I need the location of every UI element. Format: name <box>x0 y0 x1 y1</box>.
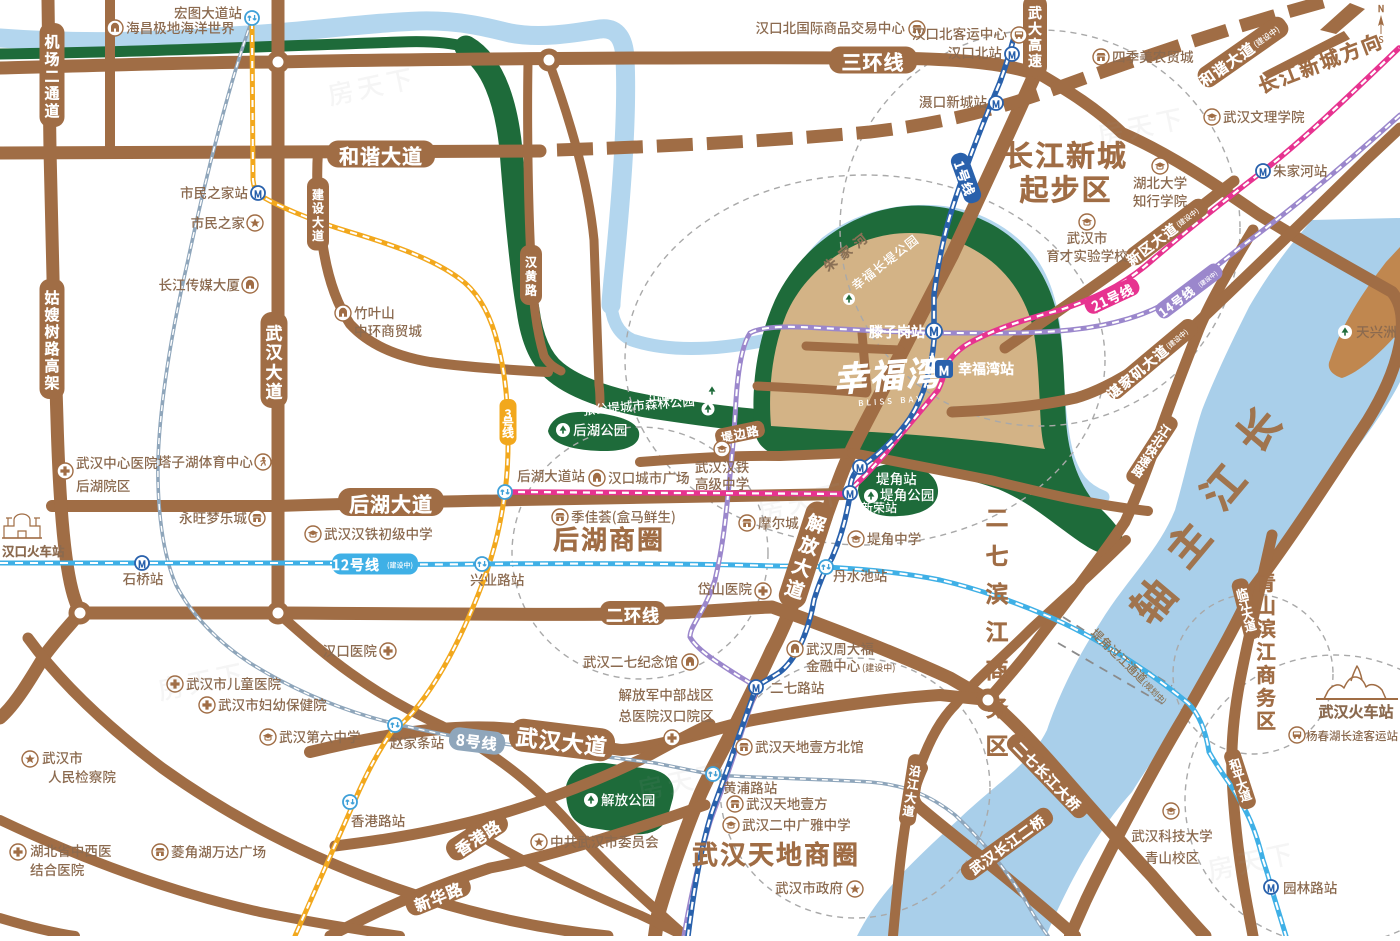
svg-text:石桥站: 石桥站 <box>123 568 164 588</box>
svg-text:滕子岗站: 滕子岗站 <box>868 322 925 342</box>
svg-text:和谐大道: 和谐大道 <box>338 141 423 170</box>
svg-text:总医院汉口院区: 总医院汉口院区 <box>618 705 713 725</box>
svg-text:M: M <box>929 323 939 340</box>
svg-text:路: 路 <box>525 282 538 299</box>
svg-text:高级中学: 高级中学 <box>695 473 749 493</box>
svg-text:道: 道 <box>312 227 324 244</box>
svg-text:滨: 滨 <box>986 575 1009 609</box>
svg-text:市民之家: 市民之家 <box>191 212 246 232</box>
svg-text:湖北大学: 湖北大学 <box>1133 172 1187 192</box>
svg-text:M: M <box>939 361 950 380</box>
svg-text:N: N <box>1378 2 1385 15</box>
svg-text:竹叶山: 竹叶山 <box>354 302 395 322</box>
svg-text:菱角湖万达广场: 菱角湖万达广场 <box>171 841 266 861</box>
svg-text:架: 架 <box>43 372 59 393</box>
svg-text:区: 区 <box>986 727 1009 761</box>
svg-text:季佳荟(盒马鲜生): 季佳荟(盒马鲜生) <box>571 506 676 526</box>
svg-text:湖北省中西医: 湖北省中西医 <box>30 840 112 860</box>
svg-text:M: M <box>856 460 864 475</box>
svg-text:区: 区 <box>1256 705 1276 734</box>
svg-text:汉口北国际商品交易中心: 汉口北国际商品交易中心 <box>755 17 905 37</box>
svg-text:丹水池站: 丹水池站 <box>833 565 888 585</box>
svg-text:二七路站: 二七路站 <box>770 677 825 697</box>
svg-text:堤角中学: 堤角中学 <box>867 528 921 548</box>
svg-text:塔子湖体育中心: 塔子湖体育中心 <box>158 451 254 471</box>
svg-text:起步区: 起步区 <box>1018 167 1112 209</box>
svg-text:武汉天地壹方北馆: 武汉天地壹方北馆 <box>755 736 864 756</box>
svg-text:武汉二七纪念馆: 武汉二七纪念馆 <box>583 651 678 671</box>
svg-text:武汉二中广雅中学: 武汉二中广雅中学 <box>742 814 851 834</box>
svg-text:后湖大道: 后湖大道 <box>348 489 433 518</box>
svg-text:朱家河站: 朱家河站 <box>1273 160 1328 180</box>
svg-text:汉口医院: 汉口医院 <box>323 640 378 660</box>
svg-text:结合医院: 结合医院 <box>30 859 85 879</box>
svg-text:七: 七 <box>986 537 1009 571</box>
svg-text:滠口新城站: 滠口新城站 <box>919 91 987 111</box>
svg-text:武汉天地商圈: 武汉天地商圈 <box>692 835 860 872</box>
svg-text:新荣站: 新荣站 <box>861 499 897 516</box>
svg-text:后湖院区: 后湖院区 <box>76 475 130 495</box>
svg-text:武汉市政府: 武汉市政府 <box>775 877 843 897</box>
svg-text:海昌极地海洋世界: 海昌极地海洋世界 <box>126 17 235 37</box>
svg-text:武汉汉铁初级中学: 武汉汉铁初级中学 <box>324 523 433 543</box>
svg-text:S: S <box>1378 33 1384 46</box>
svg-text:中环商贸城: 中环商贸城 <box>354 320 422 340</box>
svg-text:武汉市: 武汉市 <box>1067 227 1108 247</box>
svg-text:天兴洲: 天兴洲 <box>1356 321 1397 341</box>
svg-text:汉口北站: 汉口北站 <box>948 42 1003 62</box>
svg-text:后湖大道站: 后湖大道站 <box>517 465 585 485</box>
svg-text:永旺梦乐城: 永旺梦乐城 <box>179 507 247 527</box>
svg-text:岱山医院: 岱山医院 <box>698 578 753 598</box>
svg-text:M: M <box>752 680 760 695</box>
svg-text:(建设中): (建设中) <box>862 661 895 674</box>
svg-text:汉口北客运中心: 汉口北客运中心 <box>912 23 1008 43</box>
svg-text:武汉市: 武汉市 <box>42 747 83 767</box>
svg-text:商: 商 <box>986 651 1009 685</box>
svg-text:赵家条站: 赵家条站 <box>390 732 445 752</box>
svg-text:(建设中): (建设中) <box>387 561 413 571</box>
svg-text:速: 速 <box>1028 51 1042 71</box>
svg-text:育才实验学校: 育才实验学校 <box>1046 245 1128 265</box>
svg-text:武汉火车站: 武汉火车站 <box>1318 701 1393 722</box>
svg-text:12号线: 12号线 <box>332 555 380 575</box>
svg-text:知行学院: 知行学院 <box>1133 190 1188 210</box>
svg-text:汉口城市广场: 汉口城市广场 <box>608 467 690 487</box>
svg-text:道: 道 <box>266 378 283 403</box>
svg-text:武汉科技大学: 武汉科技大学 <box>1131 825 1213 845</box>
svg-text:长江传媒大厦: 长江传媒大厦 <box>158 274 240 294</box>
svg-text:道: 道 <box>44 100 59 121</box>
svg-text:M: M <box>992 96 1000 111</box>
svg-text:M: M <box>1267 880 1275 895</box>
svg-text:线: 线 <box>502 424 514 441</box>
svg-text:武汉文理学院: 武汉文理学院 <box>1223 106 1305 126</box>
svg-text:汉口火车站: 汉口火车站 <box>2 541 65 560</box>
svg-text:人民检察院: 人民检察院 <box>48 766 116 786</box>
svg-text:市民之家站: 市民之家站 <box>180 182 248 202</box>
svg-text:武汉市妇幼保健院: 武汉市妇幼保健院 <box>218 694 327 714</box>
svg-text:香港路站: 香港路站 <box>351 810 406 830</box>
svg-text:M: M <box>254 186 262 201</box>
svg-text:幸福湾: 幸福湾 <box>831 345 946 402</box>
svg-text:金融中心: 金融中心 <box>806 655 861 675</box>
svg-text:中共武汉市委员会: 中共武汉市委员会 <box>550 831 659 851</box>
svg-text:兴业路站: 兴业路站 <box>470 569 525 589</box>
svg-text:江: 江 <box>986 613 1009 647</box>
svg-text:三环线: 三环线 <box>842 47 905 76</box>
svg-text:M: M <box>1259 164 1267 179</box>
svg-text:杨春湖长途客运站: 杨春湖长途客运站 <box>1306 728 1398 744</box>
svg-text:解放军中部战区: 解放军中部战区 <box>618 684 713 704</box>
svg-text:武汉第六中学: 武汉第六中学 <box>279 726 361 746</box>
svg-text:武汉中心医院: 武汉中心医院 <box>76 452 158 472</box>
svg-text:幸福湾站: 幸福湾站 <box>958 359 1014 379</box>
svg-text:青山校区: 青山校区 <box>1145 847 1199 867</box>
svg-text:M: M <box>1008 47 1016 62</box>
svg-text:园林路站: 园林路站 <box>1283 877 1338 897</box>
svg-text:二: 二 <box>986 499 1009 533</box>
svg-text:后湖公园: 后湖公园 <box>573 419 627 439</box>
svg-text:二环线: 二环线 <box>606 602 660 627</box>
svg-text:四季美农贸城: 四季美农贸城 <box>1112 46 1194 66</box>
svg-text:武汉天地壹方: 武汉天地壹方 <box>746 793 828 813</box>
